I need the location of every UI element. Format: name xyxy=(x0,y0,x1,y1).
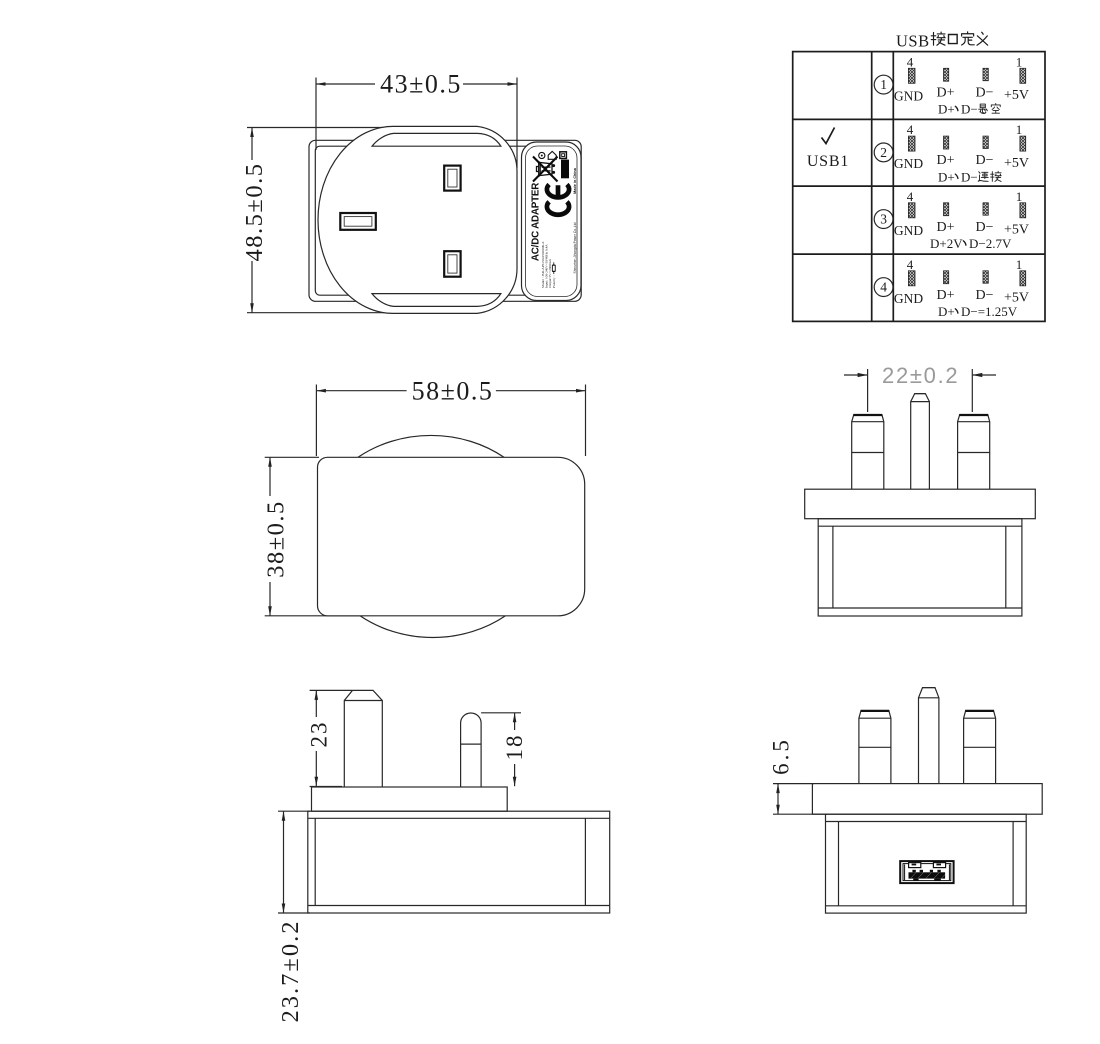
svg-text:4: 4 xyxy=(907,257,914,272)
svg-text:USB: USB xyxy=(896,32,930,51)
svg-text:Made in China: Made in China xyxy=(573,167,577,194)
svg-text:4: 4 xyxy=(907,122,914,137)
svg-text:1: 1 xyxy=(1016,122,1023,137)
svg-text:23: 23 xyxy=(307,721,332,748)
svg-text:22±0.2: 22±0.2 xyxy=(882,363,959,388)
svg-text:48.5±0.5: 48.5±0.5 xyxy=(241,163,268,262)
svg-text:D−: D− xyxy=(975,85,993,100)
svg-text:58±0.5: 58±0.5 xyxy=(412,376,494,405)
svg-text:D+: D+ xyxy=(938,304,955,319)
svg-text:1: 1 xyxy=(880,77,887,92)
svg-text:GND: GND xyxy=(894,223,923,238)
svg-text:Polarity :: Polarity : xyxy=(552,275,556,288)
svg-text:D−: D− xyxy=(975,220,993,235)
svg-text:D−2.7V: D−2.7V xyxy=(969,236,1012,251)
svg-text:+5V: +5V xyxy=(1004,88,1029,103)
svg-text:D+: D+ xyxy=(936,288,954,303)
svg-text:1: 1 xyxy=(1016,189,1023,204)
svg-text:2: 2 xyxy=(880,145,887,160)
svg-text:4: 4 xyxy=(907,189,914,204)
svg-text:1: 1 xyxy=(1016,257,1023,272)
svg-text:D−: D− xyxy=(975,153,993,168)
svg-text:D−=1.25V: D−=1.25V xyxy=(961,304,1018,319)
svg-text:4: 4 xyxy=(907,54,914,69)
svg-text:Shenzhen Jihongda Power Co.,Lt: Shenzhen Jihongda Power Co.,Ltd xyxy=(573,222,577,273)
svg-text:D−: D− xyxy=(961,169,978,184)
svg-text:GND: GND xyxy=(894,291,923,306)
svg-text:D+: D+ xyxy=(936,153,954,168)
svg-text:1: 1 xyxy=(1016,54,1023,69)
svg-text:D−: D− xyxy=(961,102,978,117)
svg-text:38±0.5: 38±0.5 xyxy=(263,500,290,578)
svg-text:6.5: 6.5 xyxy=(769,737,794,775)
svg-text:D−: D− xyxy=(975,288,993,303)
svg-text:D+: D+ xyxy=(936,220,954,235)
svg-text:D+: D+ xyxy=(936,85,954,100)
svg-text:3: 3 xyxy=(880,212,887,227)
svg-text:23.7±0.2: 23.7±0.2 xyxy=(277,920,304,1023)
svg-text:GND: GND xyxy=(894,88,923,103)
svg-text:D+2V: D+2V xyxy=(930,236,963,251)
svg-text:18: 18 xyxy=(502,734,527,761)
svg-text:D+: D+ xyxy=(938,169,955,184)
svg-text:D+: D+ xyxy=(938,102,955,117)
svg-text:AC/DC ADAPTER: AC/DC ADAPTER xyxy=(531,183,542,261)
svg-text:4: 4 xyxy=(880,280,887,295)
svg-text:GND: GND xyxy=(894,156,923,171)
svg-text:43±0.5: 43±0.5 xyxy=(380,70,462,99)
svg-text:+5V: +5V xyxy=(1004,156,1029,171)
svg-text:USB1: USB1 xyxy=(807,153,849,170)
